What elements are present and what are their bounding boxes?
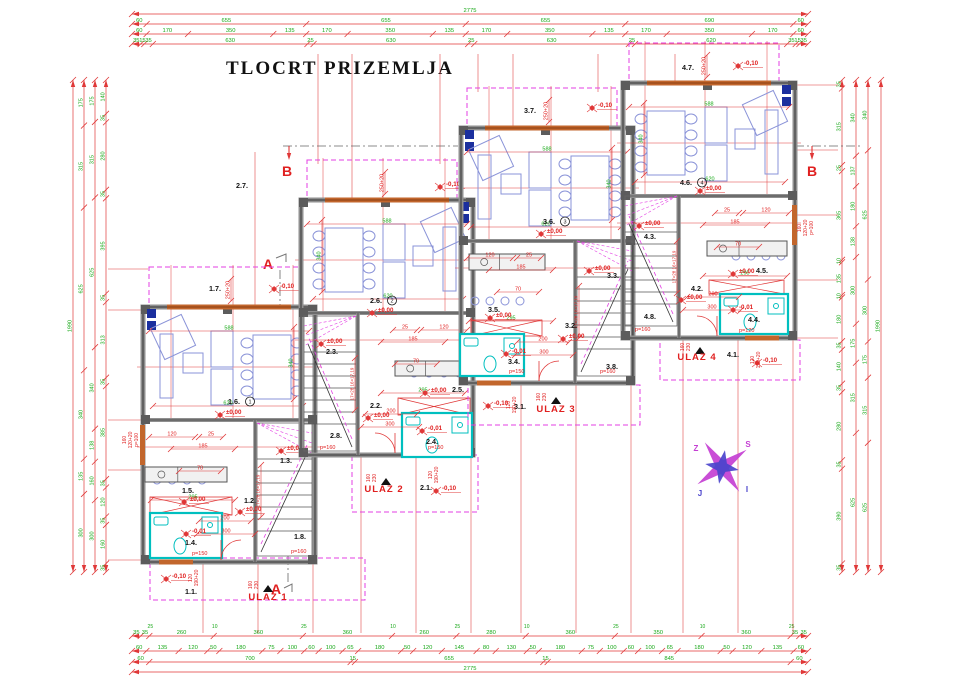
interior-dim-value: 200 (538, 337, 547, 343)
interior-dim-value: 70 (735, 242, 741, 248)
level-value: ±0,00 (374, 412, 390, 419)
dim-value: 845 (664, 656, 674, 662)
room-label: 4.4. (748, 315, 760, 324)
room-label: 1.4. (185, 538, 197, 547)
dim-value: 60 (136, 28, 142, 34)
interior-dim-value: 70 (197, 466, 203, 472)
dim-value: 50 (404, 645, 410, 651)
level-value: ±0,00 (687, 294, 703, 301)
interior-dim-value: 200 (220, 516, 229, 522)
level-value: -0,10 (763, 357, 778, 364)
dim-sub-value: 25 (301, 624, 307, 630)
dim-value: 170 (482, 28, 492, 34)
dim-value: 35 (101, 295, 107, 301)
room-label: 2.3. (326, 347, 338, 356)
interior-dim-value: 340 (289, 358, 295, 367)
parapet-value: p=160 (600, 369, 615, 375)
dim-value: 135 (79, 472, 85, 481)
level-value: ±0,00 (378, 307, 394, 314)
dim-value: 60 (797, 28, 803, 34)
dim-value: 260 (419, 630, 429, 636)
level-value: ±0,00 (431, 387, 447, 394)
dim-value: 138 (90, 441, 96, 450)
level-value: ±0,00 (226, 409, 242, 416)
dim-value: 280 (101, 151, 107, 160)
wall-pillar (626, 376, 635, 385)
sofa (501, 174, 521, 194)
entrance-label: ULAZ 3 (536, 404, 575, 415)
room-label: 2.5. (452, 385, 464, 394)
dim-value: 180 (375, 645, 385, 651)
dim-value: 140 (837, 362, 843, 371)
floor-plan-canvas: 2775606556556556906060170350135170350135… (0, 0, 960, 680)
dim-value: 60 (628, 645, 634, 651)
dim-value: 690 (705, 18, 715, 24)
stair-winder-line (304, 316, 356, 336)
dim-value: 170 (768, 28, 778, 34)
dim-value: 625 (863, 210, 869, 219)
vent-marker (147, 309, 156, 318)
dim-value: 60 (798, 645, 804, 651)
dim-value: 630 (547, 38, 557, 44)
dim-value: 350 (226, 28, 236, 34)
porch-dim: 190+20 (756, 351, 762, 368)
dining-chair (559, 159, 571, 169)
dim-value: 2775 (464, 8, 477, 14)
room-label: 3.2. (565, 321, 577, 330)
room-label: 1.6. (228, 397, 240, 406)
sofa-sectional (211, 331, 233, 367)
dim-sub-value: 10 (700, 624, 706, 630)
dim-value: 145 (454, 645, 464, 651)
dining-chair (241, 386, 253, 396)
dining-chair (685, 114, 697, 124)
porch-dim: 190+20 (512, 396, 518, 413)
dim-value: 75 (268, 645, 274, 651)
room-label: 1.7. (209, 284, 221, 293)
interior-dim-value: 120 (485, 253, 494, 259)
dim-value: 340 (851, 113, 857, 122)
room-number: 2 (390, 299, 393, 305)
dim-value: 100 (607, 645, 617, 651)
kitchen-counter (707, 241, 787, 256)
window-note: p=100 (134, 433, 140, 447)
wall-pillar (626, 126, 635, 135)
dim-value: 315 (90, 155, 96, 164)
room-label: 4.3. (644, 232, 656, 241)
dim-value: 170 (322, 28, 332, 34)
interior-dim-value: 185 (198, 444, 207, 450)
dim-value: 35 (101, 379, 107, 385)
compass-north: S (745, 440, 751, 449)
interior-dim-value: 588 (382, 219, 391, 225)
interior-dim-value: 200 (708, 292, 717, 298)
sofa-sectional (529, 152, 551, 188)
dim-value: 350 (653, 630, 663, 636)
interior-dim-value: 300 (385, 422, 394, 428)
dim-sub-value: 25 (789, 624, 795, 630)
stair-up-line (629, 216, 673, 314)
dim-value: 175 (863, 355, 869, 364)
dim-value: 120 (188, 645, 198, 651)
dim-value: 180 (236, 645, 246, 651)
dim-arrow (287, 153, 291, 160)
dim-value: 655 (222, 18, 232, 24)
level-value: ±0,00 (569, 333, 585, 340)
dim-value: 300 (863, 306, 869, 315)
dim-value: 65 (347, 645, 353, 651)
dim-value: 655 (444, 656, 454, 662)
bar-stool (486, 297, 494, 305)
interior-dim-value: 25 (724, 208, 730, 214)
dim-value: 60 (796, 656, 802, 662)
room-number: 3 (563, 220, 566, 226)
dim-value: 180 (837, 315, 843, 324)
entrance-label: ULAZ 4 (677, 352, 716, 363)
dining-chair (241, 370, 253, 380)
level-value: -0,10 (446, 181, 461, 188)
dim-value: 100 (326, 645, 336, 651)
dim-value: 130 (506, 645, 516, 651)
compass-star (705, 450, 738, 483)
dim-value: 170 (162, 28, 172, 34)
level-value: -0,01 (192, 528, 207, 535)
level-value: ±0,00 (190, 496, 206, 503)
interior-dim-value: 588 (224, 326, 233, 332)
level-value: -0,10 (744, 60, 759, 67)
dining-chair (559, 175, 571, 185)
interior-dim-value: 70 (413, 359, 419, 365)
room-label: 3.4. (508, 357, 520, 366)
dim-value: 60 (137, 656, 143, 662)
interior-dim-value: 250+20 (544, 102, 550, 121)
bar-stool (501, 297, 509, 305)
dim-value: 35 (142, 630, 148, 636)
dim-value: 120 (742, 645, 752, 651)
dim-value: 35 (145, 38, 151, 44)
dim-value: 35 (837, 81, 843, 87)
dim-value: 100 (287, 645, 297, 651)
compass-west: Z (694, 444, 699, 453)
porch-dim: 230 (372, 474, 378, 483)
interior-dim-value: 25 (402, 325, 408, 331)
section-flag (284, 584, 292, 592)
room-label: 1.5. (182, 486, 194, 495)
dim-value: 385 (101, 428, 107, 437)
room-label: 4.5. (756, 266, 768, 275)
wall-pillar (459, 376, 468, 385)
wall-pillar (141, 555, 150, 564)
sofa (413, 246, 433, 266)
entrance-label: ULAZ 1 (248, 592, 287, 603)
dim-value: 35 (837, 342, 843, 348)
window-bottom (477, 381, 511, 386)
room-label: 3.7. (524, 106, 536, 115)
dim-value: 175 (90, 96, 96, 105)
dim-arrow (810, 153, 814, 160)
dim-value: 1990 (876, 320, 882, 332)
dim-value: 60 (136, 645, 142, 651)
section-marker-b: B (282, 163, 292, 179)
room-label: 1.2. (244, 496, 256, 505)
dim-value: 138 (851, 237, 857, 246)
porch-dim: 230 (686, 343, 692, 352)
level-value: -0,01 (428, 425, 443, 432)
section-marker-a: A (263, 256, 273, 272)
dim-value: 700 (245, 656, 255, 662)
porch-dim: 190+20 (434, 466, 440, 483)
interior-dim-value: 70 (515, 287, 521, 293)
dining-chair (685, 146, 697, 156)
room-label: 4.7. (682, 63, 694, 72)
dim-value: 175 (851, 339, 857, 348)
bar-stool (516, 297, 524, 305)
dim-value: 35 (800, 38, 806, 44)
dim-value: 260 (177, 630, 187, 636)
dim-value: 135 (444, 28, 454, 34)
dining-chair (559, 191, 571, 201)
parapet-value: p=120 (739, 328, 754, 334)
vent-marker (782, 97, 791, 106)
dim-sub-value: 10 (524, 624, 530, 630)
dim-value: 625 (90, 268, 96, 277)
dim-value: 135 (285, 28, 295, 34)
entry-door-arc (697, 316, 717, 336)
dim-value: 80 (483, 645, 489, 651)
dining-chair (685, 162, 697, 172)
interior-dim-value: 250+20 (380, 174, 386, 193)
entrance-triangle (551, 397, 561, 404)
dim-value: 135 (158, 645, 168, 651)
dim-value: 625 (79, 284, 85, 293)
dim-value: 390 (837, 512, 843, 521)
interior-dim-value: 17×28 16×17,19 (672, 250, 677, 283)
wall-pillar (466, 308, 475, 317)
dim-value: 340 (79, 410, 85, 419)
level-value: -0,10 (280, 283, 295, 290)
wall-pillar (299, 198, 308, 207)
dim-value: 300 (851, 286, 857, 295)
dim-value: 135 (773, 645, 783, 651)
wall-pillar (299, 448, 308, 457)
dim-value: 65 (667, 645, 673, 651)
dim-value: 625 (863, 503, 869, 512)
section-flag (276, 254, 286, 262)
entry-door-arc (539, 361, 559, 381)
parapet-value: p=150 (428, 445, 443, 451)
dim-value: 340 (863, 111, 869, 120)
dim-value: 630 (386, 38, 396, 44)
compass-south: J (698, 489, 702, 498)
room-label: 1.1. (185, 587, 197, 596)
level-value: -0,01 (512, 348, 527, 355)
room-label: 4.8. (644, 312, 656, 321)
compass-east: I (746, 485, 748, 494)
level-value: ±0,00 (706, 185, 722, 192)
interior-dim-value: 25 (526, 253, 532, 259)
dim-value: 15 (542, 656, 548, 662)
dim-value: 315 (79, 162, 85, 171)
interior-dim-value: 185 (408, 337, 417, 343)
dim-value: 140 (101, 92, 107, 101)
dim-value: 365 (837, 211, 843, 220)
dim-value: 35 (101, 191, 107, 197)
interior-dim-value: 120 (439, 325, 448, 331)
dim-value: 135 (837, 274, 843, 283)
dim-sub-value: 10 (390, 624, 396, 630)
interior-dim-value: 588 (704, 102, 713, 108)
interior-dim-value: 25 (208, 432, 214, 438)
dim-sub-value: 10 (212, 624, 218, 630)
entry-door-arc (221, 540, 241, 560)
level-value: ±0,00 (645, 220, 661, 227)
interior-dim-value: 250+20 (702, 57, 708, 76)
dining-chair (559, 207, 571, 217)
stair-winder-line (304, 316, 356, 326)
dim-value: 35 (800, 630, 806, 636)
interior-dim-value: 300 (539, 350, 548, 356)
level-value: -0,01 (739, 304, 754, 311)
room-label: 2.1. (420, 483, 432, 492)
parapet-value: p=160 (320, 445, 335, 451)
interior-dim-value: 340 (607, 179, 613, 188)
dim-value: 175 (79, 98, 85, 107)
room-label: 4.2. (691, 284, 703, 293)
dim-value: 50 (723, 645, 729, 651)
dim-value: 350 (705, 28, 715, 34)
room-number: 4 (700, 181, 703, 187)
room-label: 3.6. (543, 217, 555, 226)
room-label: 2.2. (370, 401, 382, 410)
dining-chair (363, 231, 375, 241)
dim-value: 35 (101, 565, 107, 571)
dim-value: 655 (381, 18, 391, 24)
room-number: 1 (248, 400, 251, 406)
interior-dim-value: 340 (317, 251, 323, 260)
dim-value: 15 (350, 656, 356, 662)
level-value: -0,10 (442, 485, 457, 492)
dim-sub-value: 25 (613, 624, 619, 630)
dim-value: 60 (308, 645, 314, 651)
dim-value: 25 (468, 38, 474, 44)
dim-value: 35 (837, 385, 843, 391)
floor-plan-page: TLOCRT PRIZEMLJA 27756065565565569060601… (0, 0, 960, 680)
window-bottom (745, 336, 779, 341)
dim-value: 360 (741, 630, 751, 636)
window-bottom (159, 560, 193, 565)
dim-value: 313 (101, 335, 107, 344)
entrance-label: ULAZ 2 (364, 484, 403, 495)
dim-value: 360 (343, 630, 353, 636)
dim-value: 350 (385, 28, 395, 34)
dim-value: 2775 (464, 666, 477, 672)
dim-value: 315 (863, 406, 869, 415)
dim-value: 35 (133, 630, 139, 636)
level-value: ±0,00 (739, 268, 755, 275)
room-label: 4.6. (680, 178, 692, 187)
dim-value: 180 (555, 645, 565, 651)
wall-pillar (788, 331, 797, 340)
section-marker-b: B (807, 163, 817, 179)
room-label: 2.7. (236, 181, 248, 190)
wall-pillar (621, 191, 630, 200)
kitchen-counter (145, 467, 227, 482)
wall-pillar (141, 415, 150, 424)
parapet-value: p=150 (509, 369, 524, 375)
dining-chair (363, 279, 375, 289)
porch-dim: 230 (542, 393, 548, 402)
room-label: 2.6. (370, 296, 382, 305)
interior-dim-value: 120 (761, 208, 770, 214)
dim-value: 315 (837, 122, 843, 131)
dim-value: 360 (565, 630, 575, 636)
interior-dim-value: 250+20 (226, 281, 232, 300)
dim-value: 340 (90, 383, 96, 392)
level-value: ±0,00 (246, 506, 262, 513)
dim-value: 625 (851, 498, 857, 507)
dim-value: 50 (210, 645, 216, 651)
level-value: -0,10 (172, 573, 187, 580)
dim-value: 395 (101, 241, 107, 250)
room-label: 1.8. (294, 532, 306, 541)
porch-dim: 230 (254, 581, 260, 590)
dim-value: 137 (851, 166, 857, 175)
dim-value: 100 (645, 645, 655, 651)
interior-dim-value: 185 (730, 220, 739, 226)
dim-value: 170 (641, 28, 651, 34)
dim-value: 280 (837, 422, 843, 431)
dining-chair (241, 338, 253, 348)
sofa-sectional (383, 224, 405, 260)
dim-value: 300 (90, 531, 96, 540)
dining-chair (363, 247, 375, 257)
dim-value: 25 (837, 165, 843, 171)
interior-dim-value: 340 (639, 134, 645, 143)
dim-value: 160 (90, 476, 96, 485)
parapet-value: p=160 (635, 327, 650, 333)
dim-value: 120 (423, 645, 433, 651)
dim-value: 35 (101, 115, 107, 121)
wall-pillar (621, 81, 630, 90)
interior-dim-value: 300 (707, 305, 716, 311)
wall-pillar (459, 236, 468, 245)
interior-dim-value: 120 (167, 432, 176, 438)
dim-value: 35 (101, 518, 107, 524)
interior-dim-value: 588 (542, 147, 551, 153)
dim-value: 60 (136, 18, 142, 24)
dim-value: 75 (588, 645, 594, 651)
parapet-value: p=150 (192, 551, 207, 557)
interior-dim-value: 17×28 16×17,19 (256, 474, 261, 507)
dim-sub-value: 25 (148, 624, 154, 630)
dim-value: 60 (797, 18, 803, 24)
dim-value: 135 (604, 28, 614, 34)
dim-value: 25 (307, 38, 313, 44)
interior-dim-value: 17×28 16×17,19 (350, 367, 355, 400)
dim-value: 120 (101, 497, 107, 506)
dim-value: 35 (837, 461, 843, 467)
sofa (183, 353, 203, 373)
room-label: 4.1. (727, 350, 739, 359)
dim-value: 315 (851, 393, 857, 402)
dim-value: 50 (530, 645, 536, 651)
wall-pillar (621, 331, 630, 340)
room-label: 2.8. (330, 431, 342, 440)
sofa-sectional (705, 107, 727, 143)
dim-value: 280 (486, 630, 496, 636)
dim-value: 35 (837, 565, 843, 571)
dim-value: 160 (101, 540, 107, 549)
